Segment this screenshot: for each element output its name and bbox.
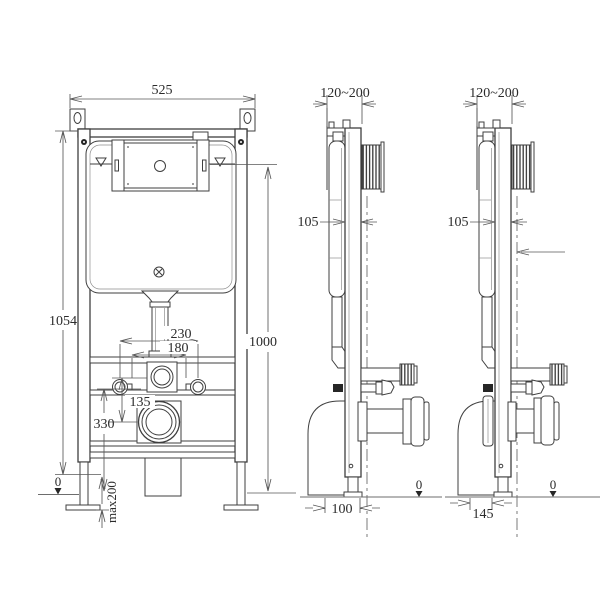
frame-top-notch-a <box>343 120 350 128</box>
dim-max200-label: max200 <box>104 481 119 523</box>
flush-pipe-b <box>482 297 492 347</box>
side-view-a <box>300 108 442 540</box>
outlet-body-a <box>367 409 403 433</box>
dim-depth-b-label: 105 <box>448 215 469 230</box>
front-zero-arrow <box>55 488 62 495</box>
threaded-connector-a <box>400 364 414 385</box>
dim-wall-b-label: 120~200 <box>469 86 519 101</box>
frame-top-bar <box>78 129 247 137</box>
inlet-pipe-b <box>511 368 550 381</box>
outlet-flange1-a <box>358 402 367 441</box>
leg-left <box>80 462 88 505</box>
foot-plate-left <box>66 505 100 510</box>
drain-chute <box>145 458 181 496</box>
side-b-zero-label: 0 <box>550 477 557 492</box>
inlet-pipe-a <box>361 368 400 381</box>
wall-bracket-clamp-b <box>479 122 484 128</box>
dim-525-label: 525 <box>152 83 173 98</box>
dim-depth-a-label: 105 <box>298 215 319 230</box>
dim-330-label: 330 <box>94 417 115 432</box>
dim-1054-label: 1054 <box>49 314 77 329</box>
flush-pipe-a <box>332 297 342 347</box>
flush-plate-cap-a <box>381 142 384 192</box>
outlet-ring-b <box>534 398 541 443</box>
outlet-cap-a <box>424 402 429 440</box>
leg-right <box>237 462 245 505</box>
wall-face-leader-arrow <box>517 249 565 255</box>
side-a-zero-label: 0 <box>416 477 423 492</box>
flush-plate-housing-a <box>362 145 381 189</box>
flush-plate-housing-b <box>512 145 531 189</box>
threaded-cap-b <box>564 366 567 383</box>
valve-body-b <box>526 382 532 394</box>
threaded-connector-b <box>550 364 564 385</box>
drawing-canvas: 525 1054 1000 230 180 135 330 0 max200 <box>0 0 600 600</box>
foot-plate-right <box>224 505 258 510</box>
dim-wall-a-label: 120~200 <box>320 86 370 101</box>
cistern-neck-a <box>333 132 343 141</box>
threaded-cap-a <box>414 366 417 383</box>
outlet-bell-b <box>541 396 554 445</box>
outlet-ring-a <box>403 399 411 444</box>
dim-180-label: 180 <box>168 341 189 356</box>
dim-100-label: 100 <box>332 502 353 517</box>
valve-cone-a <box>382 380 394 395</box>
frame-bolt-right-center <box>240 141 242 143</box>
flush-plate-window <box>112 140 209 191</box>
pipe-clamp-a <box>333 384 343 392</box>
front-zero-label: 0 <box>55 474 62 489</box>
valve-pipe-a <box>361 384 376 392</box>
leg-b <box>498 477 508 492</box>
frame-upright-right <box>235 129 247 462</box>
cross-rail-4 <box>90 452 235 458</box>
dim-230-label: 230 <box>171 327 192 342</box>
dim-135-label: 135 <box>130 395 151 410</box>
front-view <box>66 109 258 510</box>
outlet-cap-b <box>554 402 559 440</box>
foot-b <box>494 492 512 497</box>
cistern-neck-b <box>483 132 493 141</box>
dim-1000-label: 1000 <box>249 335 277 350</box>
technical-drawing: 525 1054 1000 230 180 135 330 0 max200 <box>0 0 600 600</box>
cistern-profile-a <box>329 141 345 297</box>
foot-a <box>344 492 362 497</box>
valve-cone-b <box>532 380 544 395</box>
outlet-body-b <box>516 409 534 433</box>
side-b-zero-arrow <box>550 491 557 497</box>
cistern-profile-b <box>479 141 495 297</box>
valve-pipe-b <box>511 384 526 392</box>
frame-bolt-left-center <box>83 141 85 143</box>
flush-pipe-collar-top <box>150 302 170 307</box>
side-a-zero-arrow <box>416 491 423 497</box>
flush-plate-cap-b <box>531 142 534 192</box>
leg-a <box>348 477 358 492</box>
valve-body-a <box>376 382 382 394</box>
outlet-flange1-b <box>508 402 516 441</box>
side-view-b <box>445 108 600 540</box>
frame-top-notch-b <box>493 120 500 128</box>
dim-145-label: 145 <box>473 507 494 522</box>
outlet-bell-a <box>411 397 424 446</box>
pipe-clamp-b <box>483 384 493 392</box>
wall-bracket-clamp-a <box>329 122 334 128</box>
